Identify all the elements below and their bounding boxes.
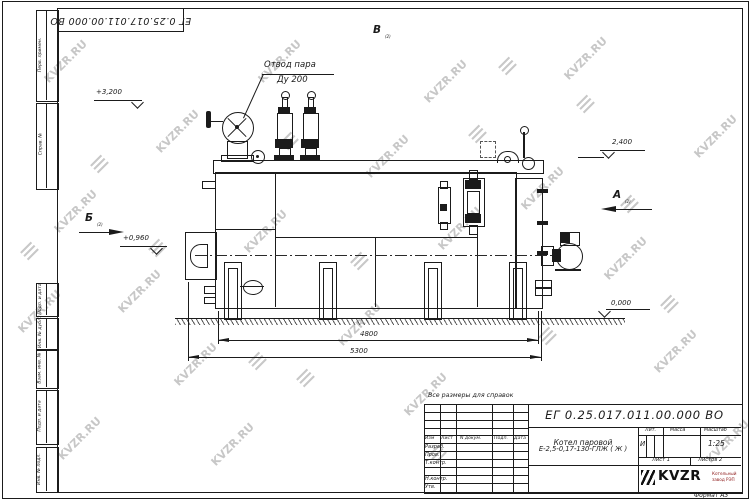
title-block-line	[528, 465, 741, 466]
stamp-label: Взам. инв. №	[36, 350, 46, 387]
dim-arrowhead	[527, 338, 538, 342]
extension-line	[538, 311, 539, 344]
kvzr-logo-icon	[641, 470, 655, 485]
title-block-line	[700, 427, 701, 457]
format-note: Формат А3	[694, 493, 728, 499]
dimension-line-5300	[188, 357, 541, 358]
rear-flange-pair	[535, 288, 552, 296]
col-izm: Изм	[425, 437, 434, 442]
sheets-total: Листов 2	[698, 458, 722, 463]
mass-header: Масса	[670, 428, 685, 433]
title-block-line	[424, 483, 528, 484]
safety-valve-band	[301, 139, 319, 148]
lit-value: И	[640, 441, 645, 448]
view-marker-a: А	[613, 190, 621, 201]
title-block-line	[424, 412, 528, 413]
phantom-outline	[480, 141, 496, 158]
col-dokum: N докум.	[460, 437, 481, 442]
kvzr-logo-text: KVZR	[658, 468, 701, 484]
stamp-label: Перв. примен.	[36, 10, 46, 100]
steam-outlet-dn: Ду 200	[277, 76, 308, 85]
gauge-glass	[467, 191, 480, 214]
col-data: Дата	[514, 437, 526, 442]
drawing-sheet: KVZR.RU KVZR.RU KVZR.RU KVZR.RU KVZR.RU …	[0, 0, 750, 500]
flange-fitting	[202, 181, 216, 189]
row-tkontr: Т.контр.	[425, 461, 447, 466]
col-podp: Подп.	[494, 437, 508, 442]
stamp-label: Инв. № подл.	[35, 447, 45, 491]
stamp-divider	[46, 283, 47, 315]
safety-valve-body	[277, 113, 293, 142]
stamp-label: Справ. №	[37, 102, 47, 187]
doc-number: ЕГ 0.25.017.011.00.000 ВО	[545, 409, 724, 421]
title-block-line	[424, 467, 528, 468]
rod-knob	[520, 126, 529, 135]
title-block-line	[492, 404, 493, 492]
rear-flange-pair	[535, 280, 552, 288]
valve-hub	[235, 125, 239, 129]
lit-header: Лит.	[645, 428, 656, 433]
elevation-lead	[578, 157, 604, 158]
extension-line	[188, 282, 189, 361]
doc-number-top-box: ЕГ 0.25.017.011.00.000 ВО	[57, 8, 184, 32]
stamp-divider	[46, 447, 47, 491]
steam-pipe-flange	[221, 155, 254, 162]
gauge-cap	[465, 214, 481, 223]
safety-valve-base	[300, 155, 320, 161]
valve-stem	[211, 121, 223, 122]
dim-arrowhead	[530, 355, 541, 359]
dim-arrowhead	[218, 338, 229, 342]
view-marker-v-ref: (2)	[385, 35, 391, 39]
stamp-divider	[46, 390, 47, 443]
view-arrow-line	[613, 209, 652, 210]
stamp-divider	[46, 10, 47, 100]
logo-caption-line1: Котельный	[712, 471, 736, 476]
stamp-label: Подп. и дата	[36, 390, 46, 443]
panel-line	[477, 227, 478, 307]
leader-shelf	[262, 74, 334, 75]
stamp-label: Подп. и дата	[36, 283, 46, 315]
pump-motor-fin	[561, 233, 570, 243]
valve-handwheel	[206, 111, 211, 128]
view-arrowhead-right	[109, 229, 124, 235]
elevation-shelf	[606, 309, 650, 310]
gauge-cap	[465, 180, 481, 189]
extension-line	[541, 311, 542, 361]
row-razrab: Разраб.	[425, 445, 445, 450]
view-marker-v: В	[373, 25, 381, 36]
title-block-line	[424, 428, 528, 429]
manhole-centerline	[240, 286, 264, 287]
title-block-line	[424, 420, 528, 421]
elevation-0000: 0,000	[611, 300, 631, 307]
elevation-3200: +3,200	[96, 89, 122, 96]
rear-flange	[537, 221, 548, 225]
safety-valve-band	[275, 139, 293, 148]
row-nkontr: Н.контр.	[425, 477, 447, 482]
stamp-divider	[46, 318, 47, 348]
doc-number-cell: ЕГ 0.25.017.011.00.000 ВО	[528, 404, 741, 427]
support-leg-web	[428, 268, 438, 320]
title-block-line	[513, 404, 514, 492]
pump-volute	[556, 243, 583, 270]
row-utv: Утв.	[425, 485, 436, 490]
view-marker-b: Б	[85, 213, 93, 224]
flange-fitting	[204, 286, 216, 294]
lug-hole	[504, 156, 511, 163]
view-arrow-line	[79, 232, 110, 233]
dimension-line-4800	[218, 340, 538, 341]
gauge-stem	[469, 225, 478, 235]
support-leg-web	[228, 268, 238, 320]
rear-flange	[537, 189, 548, 193]
doc-number-top: ЕГ 0.25.017.011.00.000 ВО	[50, 15, 191, 25]
title-block-line	[654, 435, 655, 457]
manhole	[243, 280, 263, 295]
vent-dot	[256, 155, 259, 158]
panel-line	[215, 229, 275, 230]
col-list: Лист	[441, 437, 453, 442]
support-leg-web	[323, 268, 333, 320]
rod	[523, 132, 525, 158]
stamp-divider	[46, 350, 47, 387]
support-leg-web	[513, 268, 523, 320]
safety-valve-base	[274, 155, 294, 161]
view-arrowhead-left	[601, 206, 616, 212]
safety-valve-body	[303, 113, 319, 142]
elevation-0960: +0,960	[123, 235, 149, 242]
view-marker-b-ref: (2)	[97, 223, 103, 227]
logo-caption-line2: завод РЭП	[712, 477, 735, 482]
title-block-line	[456, 404, 457, 492]
title-block-line	[638, 427, 639, 492]
title-block-line	[424, 451, 528, 452]
centerline	[195, 255, 552, 256]
title-block-line	[690, 457, 691, 465]
sheet-number: Лист 1	[652, 458, 670, 463]
rod-ring	[522, 157, 535, 170]
gauge-fitting	[440, 181, 448, 189]
burner	[190, 244, 208, 268]
panel-line	[375, 237, 376, 307]
gauge-stem	[469, 170, 478, 180]
reference-note: Все размеры для справок	[428, 393, 513, 400]
product-name-cell: Котел паровой Е-2,5-0,17-130-ГЛЖ ( Ж )	[528, 427, 638, 465]
steam-outlet-label: Отвод пара	[264, 61, 316, 70]
ground-hatch	[175, 319, 625, 325]
title-block-line	[646, 435, 647, 457]
dim-arrowhead	[188, 355, 199, 359]
elevation-2400: 2,400	[612, 139, 632, 146]
panel-line	[275, 172, 276, 307]
product-designation: Е-2,5-0,17-130-ГЛЖ ( Ж )	[539, 446, 627, 453]
view-marker-a-ref: (2)	[625, 200, 631, 204]
scale-value: 1:25	[708, 440, 725, 448]
dimension-4800: 4800	[360, 331, 378, 338]
stamp-label: Инв. № дубл.	[36, 318, 46, 348]
title-block-line	[663, 427, 664, 457]
scale-header: Масштаб	[704, 428, 727, 433]
panel-line	[275, 237, 477, 238]
gauge-fitting	[440, 222, 448, 230]
flange-fitting	[204, 297, 216, 304]
gauge-valve	[440, 204, 447, 211]
row-prov: Пров.	[425, 453, 440, 458]
pump-foot	[555, 269, 581, 271]
dimension-5300: 5300	[350, 348, 368, 355]
